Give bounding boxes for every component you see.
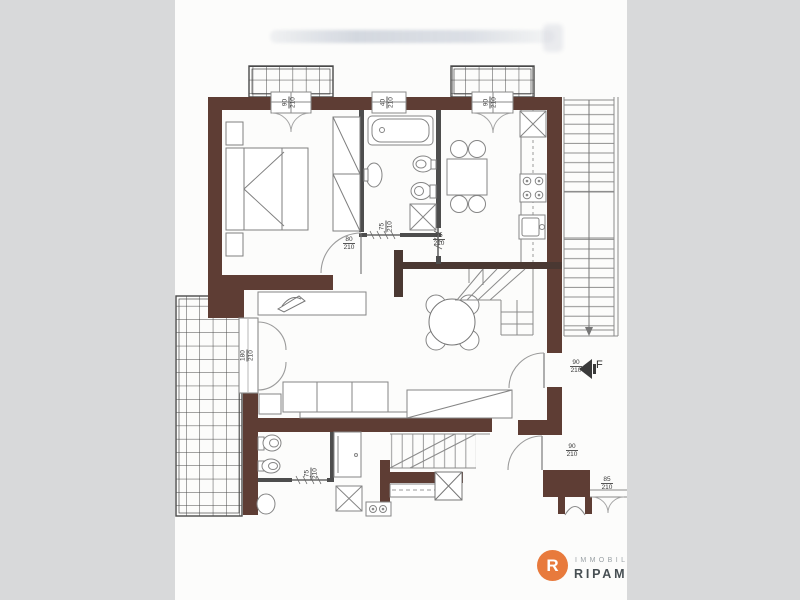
living-room-furniture: [258, 292, 512, 418]
sideboard: [258, 292, 366, 315]
dim-label-kitchen-window: 90210: [483, 93, 498, 113]
side-table: [259, 394, 281, 414]
nightstand: [226, 122, 243, 145]
bidet-lower: [258, 459, 280, 473]
floor-plan-drawing: [175, 0, 627, 600]
chair: [451, 196, 468, 213]
entrance-marker-label: F: [596, 359, 603, 371]
wardrobe: [333, 117, 360, 231]
bathtub: [368, 116, 433, 145]
shower-tray: [336, 486, 362, 511]
dim-label-balcony-door: 180210: [240, 346, 255, 366]
dim-label-entrance-door: 90210: [566, 359, 586, 374]
scan-paper: 90210 40210 90210 75210 80210 75210 1802…: [175, 0, 627, 600]
structural-column: [435, 472, 462, 500]
kitchen-furniture: [447, 110, 546, 262]
scanned-floor-plan: 90210 40210 90210 75210 80210 75210 1802…: [0, 0, 800, 600]
logo-text-line1: IMMOBILI: [575, 557, 627, 564]
bidet: [413, 156, 436, 172]
kitchen-sink: [519, 215, 545, 239]
toilet-lower: [258, 435, 281, 451]
logo-text-line2: RIPAMO: [574, 567, 627, 581]
dim-label-kitchen-door: 75210: [429, 232, 449, 247]
bathroom-fixtures: [364, 116, 436, 230]
double-bed: [226, 148, 308, 230]
washbasin-lower: [257, 494, 275, 514]
lower-stove: [366, 502, 391, 516]
dim-label-lower-bath-door: 75210: [304, 464, 319, 484]
lower-window: [590, 490, 627, 513]
sofa: [283, 382, 420, 418]
counter-column: [520, 111, 546, 137]
washing-machine: [410, 204, 436, 230]
nightstand: [226, 233, 243, 256]
dim-label-bedroom-window: 90210: [282, 93, 297, 113]
round-table: [429, 299, 475, 345]
chair: [469, 196, 486, 213]
stair-direction-arrow-icon: [585, 327, 593, 336]
shower-stall: [334, 432, 361, 477]
arch-niche: [565, 507, 585, 516]
dim-label-bath-window: 40210: [380, 93, 395, 113]
toilet: [411, 183, 436, 200]
chair: [451, 141, 468, 158]
lower-unit-entrance-door: [508, 436, 542, 470]
kitchen-table: [447, 159, 487, 195]
stove: [520, 174, 546, 202]
washbasin: [364, 163, 382, 187]
entrance-door: [509, 353, 544, 388]
cabinet-with-diagonal: [407, 390, 512, 418]
ripamonti-logo-icon: R: [537, 550, 568, 581]
dim-label-bath-door: 75210: [379, 217, 394, 237]
balcony-left: [176, 296, 242, 516]
chair: [469, 141, 486, 158]
dim-label-lower-door: 90210: [562, 443, 582, 458]
dim-label-lower-window: 85210: [597, 476, 617, 491]
dim-label-bedroom-door: 80210: [339, 236, 359, 251]
lower-staircase: [390, 434, 490, 468]
logo-letter: R: [546, 557, 558, 574]
common-staircase: [564, 97, 618, 336]
